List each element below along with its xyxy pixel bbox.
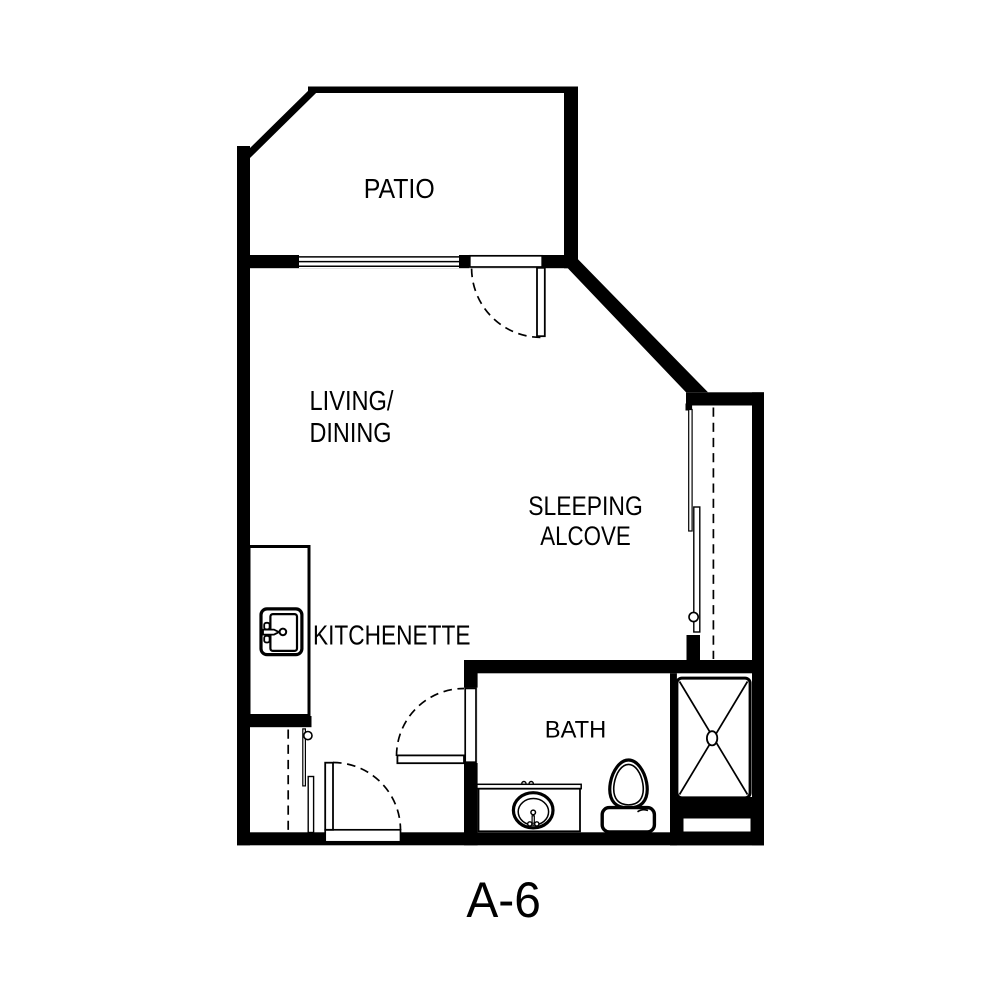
svg-text:DINING: DINING — [310, 417, 392, 448]
svg-text:A-6: A-6 — [466, 872, 541, 928]
svg-text:ALCOVE: ALCOVE — [540, 521, 631, 551]
svg-text:PATIO: PATIO — [364, 173, 435, 204]
svg-text:BATH: BATH — [545, 716, 607, 743]
svg-text:KITCHENETTE: KITCHENETTE — [313, 619, 471, 650]
svg-text:LIVING/: LIVING/ — [310, 385, 394, 416]
svg-text:SLEEPING: SLEEPING — [528, 491, 643, 521]
